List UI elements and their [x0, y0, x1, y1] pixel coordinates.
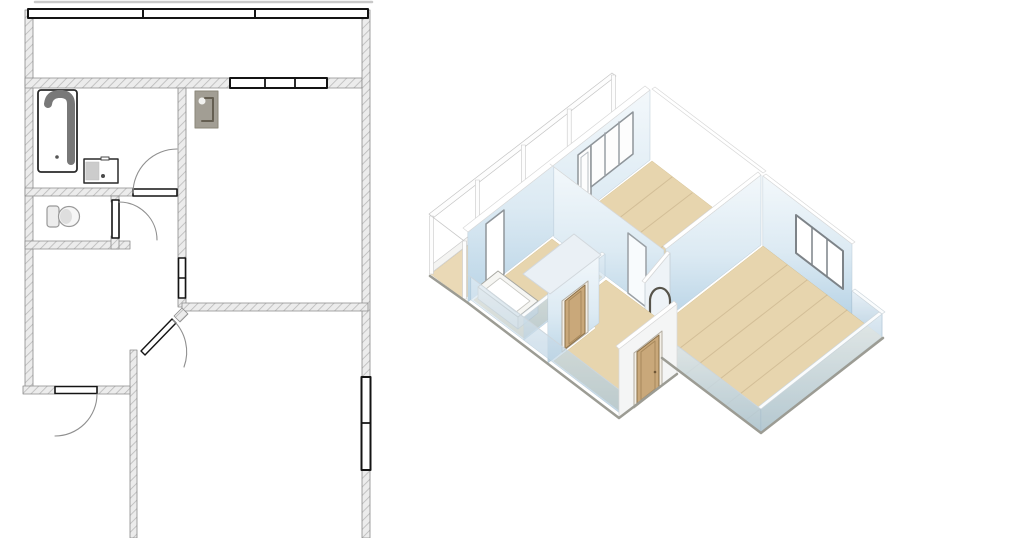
glazing-west-rail [430, 215, 467, 243]
door-bigroom-arc [173, 320, 187, 367]
floorplan-canvas [0, 0, 1024, 538]
wall-bath-south [25, 188, 133, 196]
east-wall-upper-top [652, 87, 766, 173]
sink-drain [101, 174, 105, 178]
wall-kitchen-south [182, 303, 368, 311]
glazing-west-post [463, 241, 467, 299]
wall-west [25, 10, 33, 393]
window-kitchen [230, 78, 327, 88]
toilet-tank [47, 206, 59, 227]
door-wc-leaf [112, 200, 119, 238]
door-entrance-leaf [55, 387, 97, 394]
sink-shade [86, 162, 99, 180]
bathtub-drain [55, 155, 59, 159]
sink-faucet [101, 157, 109, 160]
kitchen-doorway [628, 233, 646, 307]
stove [195, 91, 218, 128]
floorplan-2d [23, 2, 372, 538]
window-balcony-band [28, 9, 368, 18]
wall-entrance-a [23, 386, 55, 394]
door-bathroom-arc [133, 149, 177, 193]
wall-entrance-b [97, 386, 130, 394]
door-entrance-arc [55, 394, 97, 436]
glazing-post-1 [430, 216, 434, 274]
wall-bigroom-west [130, 350, 137, 538]
floorplan-screenshot [0, 0, 1024, 538]
toilet-bowl-inner [60, 209, 72, 224]
floorplan-3d [429, 73, 885, 433]
door-bigroom-leaf [141, 319, 176, 355]
door-wc-arc [119, 202, 157, 240]
door-bathroom-leaf [133, 189, 177, 196]
entrance-door-knob [654, 371, 657, 374]
